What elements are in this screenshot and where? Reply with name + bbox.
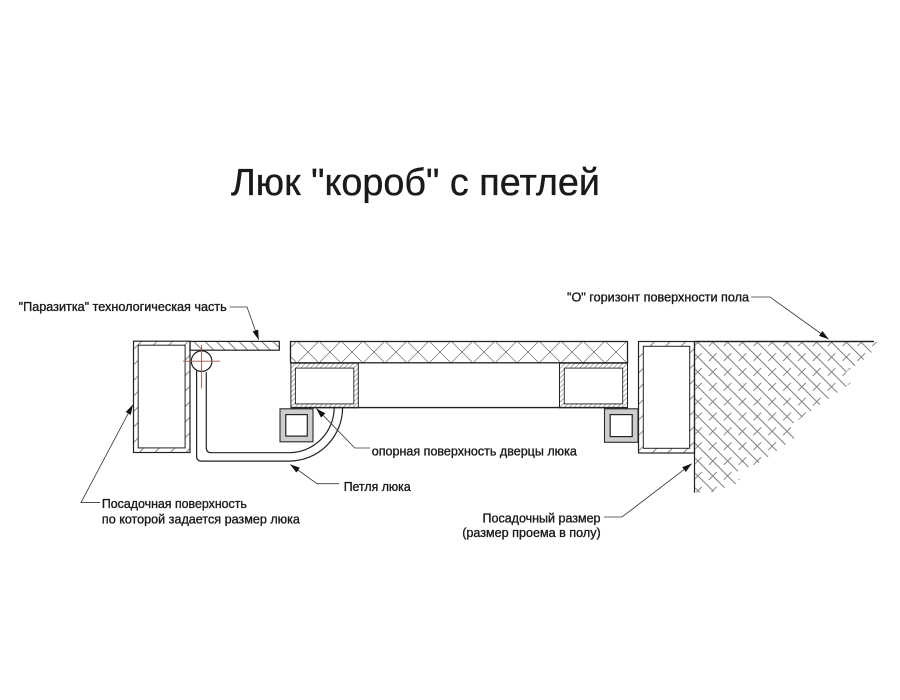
svg-text:Люк "короб" с петлей: Люк "короб" с петлей [231, 162, 600, 204]
svg-text:по которой задается размер люк: по которой задается размер люка [102, 512, 300, 526]
svg-text:опорная поверхность дверцы люк: опорная поверхность дверцы люка [372, 444, 577, 458]
svg-text:Посадочная поверхность: Посадочная поверхность [102, 497, 247, 511]
svg-text:Посадочный размер: Посадочный размер [483, 511, 601, 525]
svg-text:(размер проема в полу): (размер проема в полу) [462, 526, 601, 540]
svg-text:"Паразитка" технологическая ча: "Паразитка" технологическая часть [19, 300, 227, 314]
svg-text:Петля люка: Петля люка [344, 480, 411, 494]
svg-text:"О" горизонт поверхности пола: "О" горизонт поверхности пола [567, 291, 749, 305]
